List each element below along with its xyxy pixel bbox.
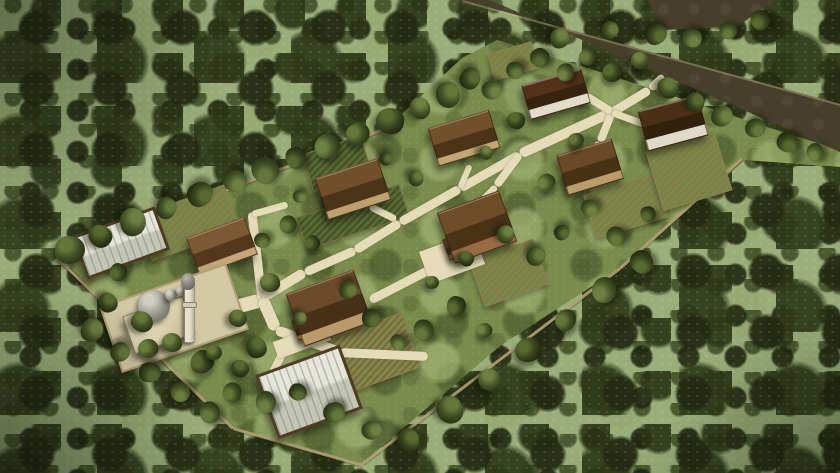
- tree-cluster: [117, 205, 150, 239]
- tree-cluster: [642, 20, 671, 48]
- tree-cluster: [96, 289, 120, 314]
- tree-cluster: [78, 315, 106, 344]
- tree-cluster: [803, 140, 826, 164]
- tree-cluster: [387, 331, 409, 352]
- tree-cluster: [205, 344, 222, 360]
- tree-cluster: [84, 220, 117, 252]
- tree-cluster: [221, 380, 243, 403]
- tree-cluster: [322, 400, 347, 424]
- tree-cluster: [534, 170, 557, 194]
- village-aerial-render: [0, 0, 840, 473]
- tree-cluster: [435, 81, 462, 109]
- tree-cluster: [161, 332, 182, 352]
- tree-cluster: [629, 49, 652, 71]
- tree-cluster: [135, 335, 162, 361]
- tree-cluster: [411, 316, 437, 343]
- tree-cluster: [166, 379, 193, 406]
- tree-cluster: [477, 142, 496, 161]
- tree-cluster: [743, 117, 766, 139]
- tree-cluster: [599, 18, 622, 42]
- tree-cluster: [291, 188, 308, 205]
- tree-cluster: [222, 169, 248, 193]
- tree-cluster: [226, 306, 250, 329]
- tree-cluster: [444, 294, 468, 319]
- tree-cluster: [107, 261, 129, 284]
- tree-cluster: [716, 18, 740, 43]
- tree-cluster: [680, 27, 703, 49]
- tree-cluster: [358, 416, 385, 443]
- tree-cluster: [473, 319, 495, 340]
- tree-cluster: [127, 307, 157, 336]
- tree-cluster: [432, 391, 468, 428]
- tree-cluster: [580, 199, 600, 218]
- tree-cluster: [301, 232, 323, 254]
- tree-cluster: [106, 339, 133, 366]
- tree-cluster: [505, 110, 526, 130]
- tree-cluster: [549, 27, 571, 50]
- tree-cluster: [456, 63, 485, 92]
- tree-cluster: [377, 149, 396, 168]
- tree-cluster: [576, 44, 600, 68]
- tree-cluster: [252, 388, 280, 417]
- tree-cluster: [551, 222, 572, 243]
- tree-cluster: [278, 214, 297, 234]
- tree-cluster: [600, 60, 625, 84]
- tree-cluster: [197, 399, 222, 426]
- tree-cluster: [396, 427, 421, 454]
- tree-cluster: [259, 272, 281, 293]
- tree-cluster: [336, 278, 360, 302]
- tree-cluster: [342, 119, 373, 150]
- tree-cluster: [504, 60, 526, 81]
- tree-cluster: [374, 106, 406, 136]
- tree-cluster: [284, 145, 308, 170]
- tree-cluster: [602, 222, 629, 249]
- tree-cluster: [139, 362, 161, 383]
- tree-cluster: [750, 9, 770, 31]
- tree-cluster: [292, 310, 308, 327]
- tree-cluster: [774, 128, 803, 156]
- tree-cluster: [252, 230, 272, 249]
- tree-cluster: [286, 380, 310, 403]
- tree-cluster: [310, 129, 343, 163]
- tree-cluster: [685, 91, 705, 112]
- tree-cluster: [242, 333, 269, 361]
- tree-cluster: [626, 246, 658, 278]
- tree-cluster: [566, 130, 587, 150]
- trees-layer: [0, 0, 840, 473]
- tree-cluster: [557, 63, 574, 81]
- tree-cluster: [527, 44, 554, 71]
- tree-cluster: [592, 277, 617, 304]
- tree-cluster: [246, 151, 284, 189]
- tree-cluster: [640, 205, 657, 223]
- tree-cluster: [523, 243, 548, 269]
- tree-cluster: [55, 236, 85, 264]
- tree-cluster: [512, 335, 543, 365]
- tree-cluster: [496, 223, 516, 244]
- tree-cluster: [362, 308, 383, 327]
- tree-cluster: [707, 101, 737, 131]
- tree-cluster: [551, 305, 581, 335]
- tree-cluster: [408, 170, 424, 187]
- tree-cluster: [479, 78, 504, 103]
- tree-cluster: [228, 356, 253, 380]
- tree-cluster: [183, 177, 218, 211]
- tree-cluster: [425, 275, 440, 289]
- tree-cluster: [405, 93, 435, 123]
- tree-cluster: [653, 73, 682, 103]
- tree-cluster: [455, 247, 477, 269]
- tree-cluster: [475, 365, 506, 395]
- tree-cluster: [153, 194, 180, 222]
